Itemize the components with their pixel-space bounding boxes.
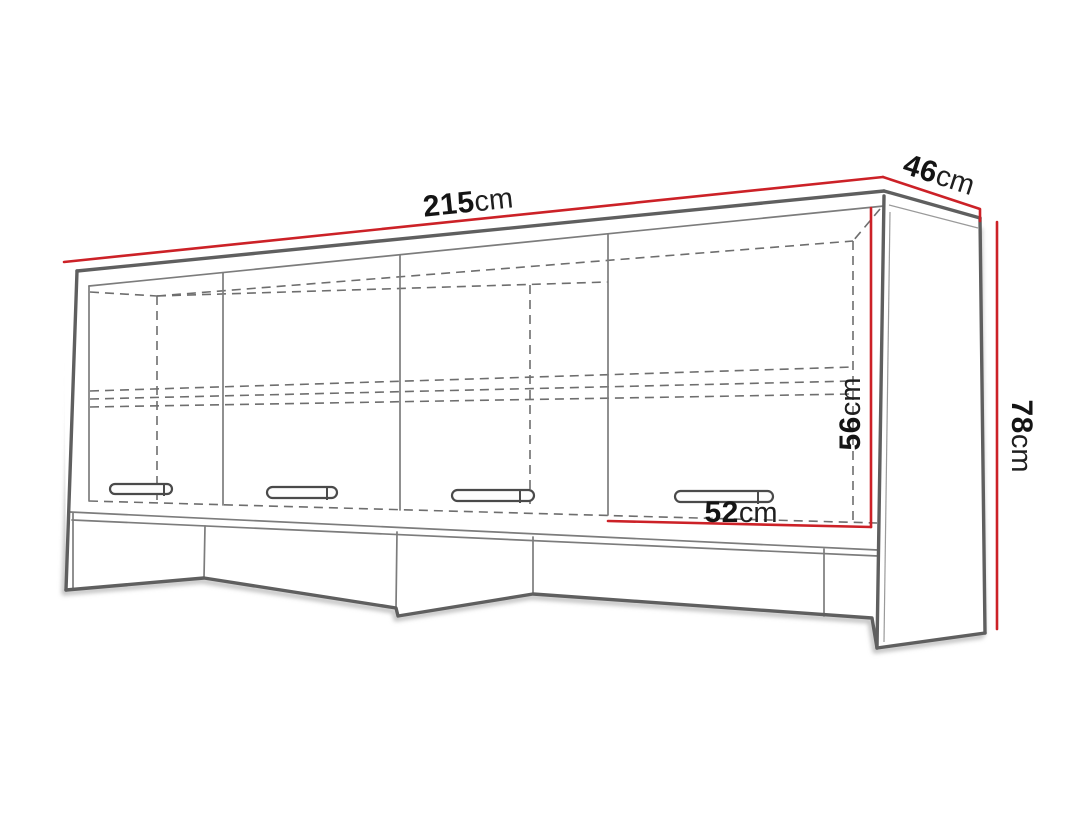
cabinet-drawing-canvas: 215cm 46cm 56cm 78cm 52cm — [0, 0, 1086, 814]
dimension-label-opening-width: 52cm — [704, 496, 777, 529]
dimension-label-height: 78cm — [1005, 399, 1038, 472]
furniture-dimension-diagram: 215cm 46cm 56cm 78cm 52cm — [0, 0, 1086, 814]
door-handle — [452, 490, 534, 501]
dimension-label-opening-height: 56cm — [834, 377, 867, 450]
door-handle — [110, 484, 172, 494]
